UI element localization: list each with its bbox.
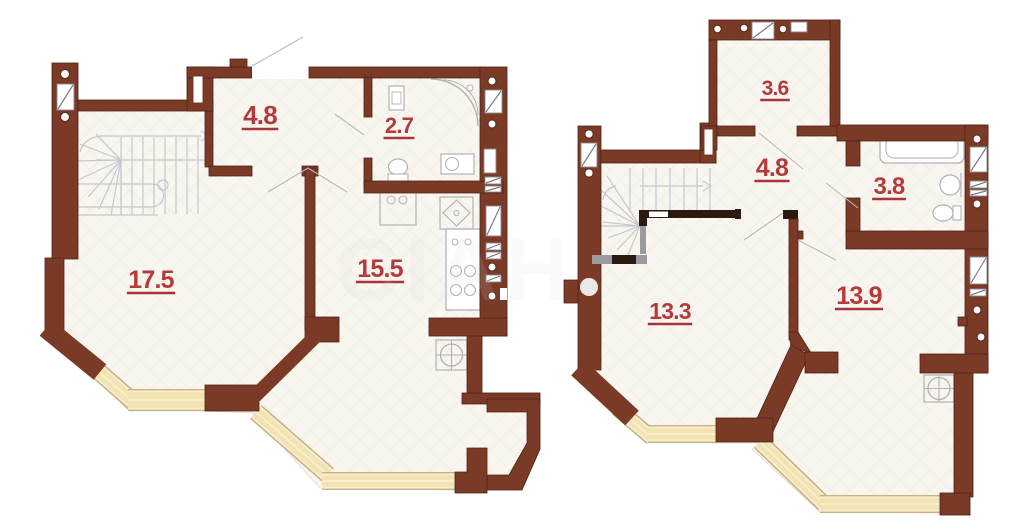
svg-text:2.7: 2.7	[385, 113, 414, 138]
svg-text:13.9: 13.9	[836, 282, 881, 310]
svg-text:3.6: 3.6	[762, 77, 789, 100]
svg-text:4.8: 4.8	[756, 154, 789, 182]
svg-text:4.8: 4.8	[243, 100, 277, 130]
svg-text:13.3: 13.3	[649, 298, 691, 324]
svg-text:17.5: 17.5	[128, 266, 174, 294]
svg-text:3.8: 3.8	[874, 173, 905, 200]
svg-text:CIAH: CIAH	[335, 220, 574, 319]
